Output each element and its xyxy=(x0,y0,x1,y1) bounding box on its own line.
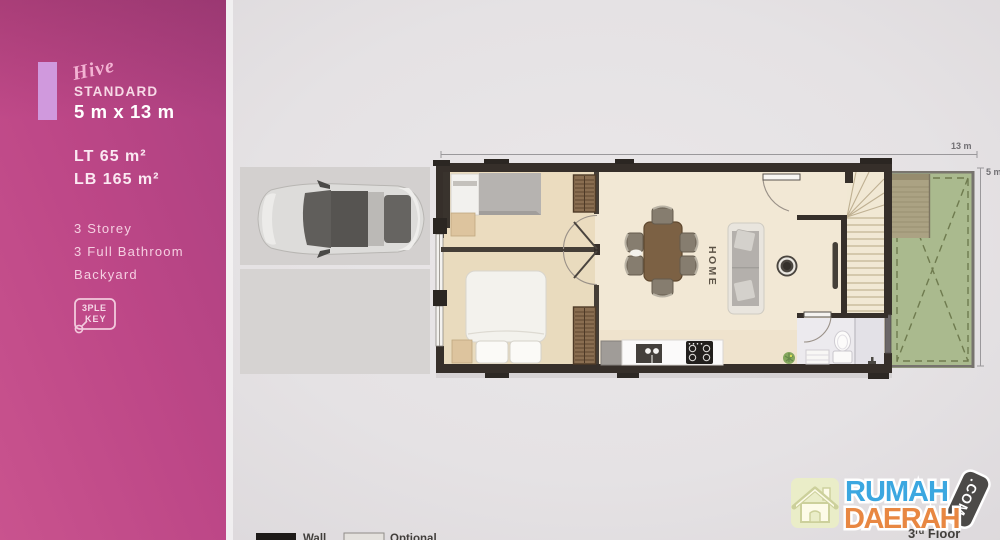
svg-text:HOME: HOME xyxy=(706,246,718,287)
svg-text:Optional: Optional xyxy=(390,533,437,540)
svg-text:5 m: 5 m xyxy=(986,167,1000,177)
svg-text:13 m: 13 m xyxy=(951,141,972,151)
svg-text:Wall: Wall xyxy=(303,533,326,540)
svg-text:DAERAH: DAERAH xyxy=(844,503,959,535)
